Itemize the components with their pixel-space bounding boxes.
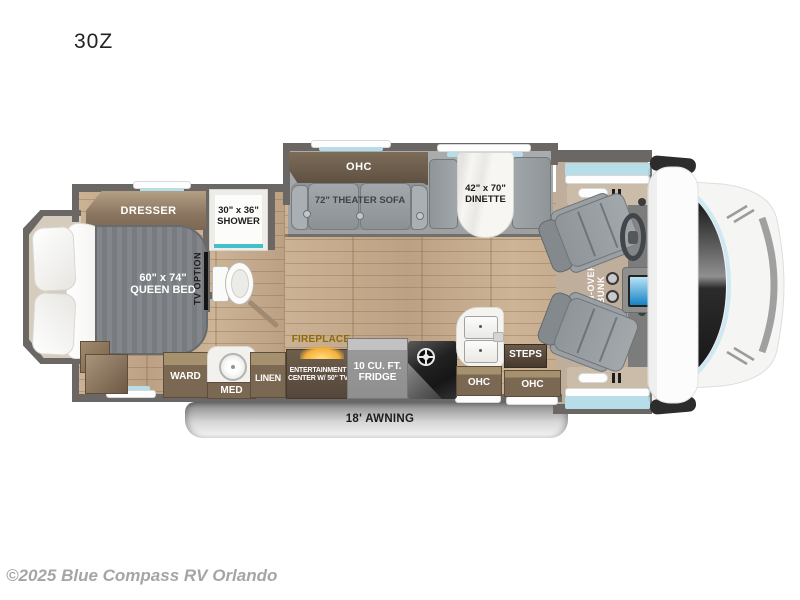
entry-steps: STEPS <box>504 344 547 368</box>
cupholder-icon <box>416 212 424 220</box>
cupholder-icon <box>356 212 364 220</box>
cupholder-icon <box>303 210 311 218</box>
tv-option-mount <box>204 252 208 310</box>
fireplace-glow-icon <box>300 346 344 359</box>
ohc-kitchen-left: OHC <box>456 366 502 396</box>
range-stove <box>408 341 457 399</box>
seat-seam <box>576 308 595 354</box>
ohc-kitchen-right-label: OHC <box>505 379 560 390</box>
bed-pillow <box>31 292 76 356</box>
dinette-label: 42" x 70" DINETTE <box>457 184 514 205</box>
faucet-icon <box>493 332 504 342</box>
ohc-living: OHC <box>289 152 428 185</box>
tv-option-label: TV OPTION <box>192 240 205 318</box>
cab-roof-shade <box>648 167 657 403</box>
fridge: 10 CU. FT. FRIDGE <box>347 338 408 399</box>
fireplace-label: FIREPLACE <box>288 334 354 345</box>
shower-threshold <box>214 244 263 248</box>
entertainment-center-label: ENTERTAINMENT CENTER W/ 50" TV <box>287 367 349 383</box>
vehicle-front-cab <box>630 140 800 430</box>
kitchen-counter <box>456 307 504 368</box>
bed-pillow <box>31 226 76 292</box>
wardrobe: WARD <box>163 352 208 398</box>
wall-rear-upper <box>72 184 79 222</box>
burner-icon <box>415 346 437 368</box>
shower-label: 30" x 36" SHOWER <box>211 206 266 227</box>
cupholder-icon <box>606 272 619 285</box>
ohc-kitchen-right: OHC <box>504 370 561 397</box>
sink-basin-icon <box>219 353 247 381</box>
floorplan-page: 30Z 18' AWNING <box>0 0 800 600</box>
wardrobe-label: WARD <box>164 371 207 382</box>
entry-door <box>506 396 558 405</box>
sink-drain-icon <box>479 325 482 328</box>
sink-drain-icon <box>479 349 482 352</box>
awning-bar: 18' AWNING <box>185 402 568 438</box>
dinette-window <box>437 144 531 152</box>
linen-cabinet-label: LINEN <box>249 373 287 383</box>
seat-seam <box>577 211 596 257</box>
linen-cabinet: LINEN <box>250 352 286 398</box>
dresser-label: DRESSER <box>96 205 201 217</box>
wall-slide-left <box>283 143 290 205</box>
awning-label: 18' AWNING <box>315 413 445 426</box>
fridge-label: 10 CU. FT. FRIDGE <box>348 361 407 383</box>
sink-drain-icon <box>231 365 235 369</box>
sofa-armrest <box>291 185 308 230</box>
seat-seam <box>599 203 618 249</box>
toilet-seat <box>231 269 249 298</box>
seat-seam <box>599 317 618 363</box>
entry-steps-label: STEPS <box>505 349 546 360</box>
cab-vent-bottom <box>578 373 608 383</box>
med-cabinet-label: MED <box>208 385 255 396</box>
dinette-bench <box>429 159 458 229</box>
range-front-icon <box>408 363 442 399</box>
sofa-window-glass <box>319 147 383 151</box>
floorplan-model-label: 30Z <box>74 30 113 54</box>
theater-sofa-label: 72" THEATER SOFA <box>299 196 421 207</box>
cupholder-icon <box>606 290 619 303</box>
wall-bath-right <box>268 186 275 250</box>
sink-basin-icon <box>464 340 498 363</box>
shower: 30" x 36" SHOWER <box>209 189 268 251</box>
foot-cabinet <box>85 354 128 394</box>
copyright-watermark: ©2025 Blue Compass RV Orlando <box>6 566 277 586</box>
med-cabinet: MED <box>207 382 256 399</box>
sofa-armrest <box>411 185 428 230</box>
slideout-edge-line <box>285 234 553 237</box>
ohc-living-label: OHC <box>309 161 409 173</box>
ohc-kitchen-left-label: OHC <box>457 377 501 388</box>
